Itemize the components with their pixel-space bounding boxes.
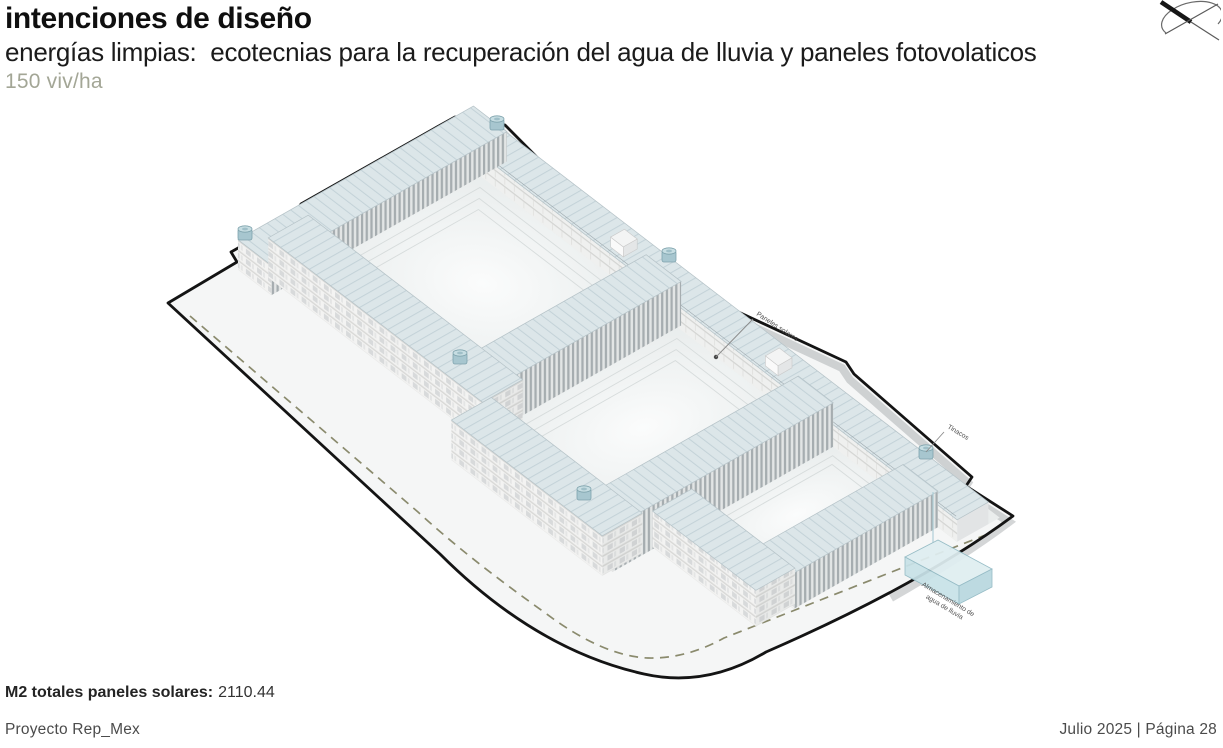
tinaco-icon: [238, 226, 252, 240]
footer-project: Proyecto Rep_Mex: [5, 721, 140, 739]
tinaco-icon: [577, 486, 591, 500]
tinaco-icon: [453, 350, 467, 364]
label-tinacos: Tinacos: [946, 424, 970, 442]
site-axonometric-diagram: Paneles solares Tinacos Almacenamiento d…: [0, 0, 1223, 748]
tinaco-icon: [662, 248, 676, 262]
stats-label: M2 totales paneles solares:: [5, 684, 213, 701]
tinaco-icon: [490, 116, 504, 130]
footer-date-page: Julio 2025 | Página 28: [1059, 721, 1217, 739]
stats-value: 2110.44: [218, 684, 275, 701]
footer: Proyecto Rep_Mex Julio 2025 | Página 28: [5, 721, 1217, 739]
solar-panel-total: M2 totales paneles solares:2110.44: [5, 684, 275, 702]
